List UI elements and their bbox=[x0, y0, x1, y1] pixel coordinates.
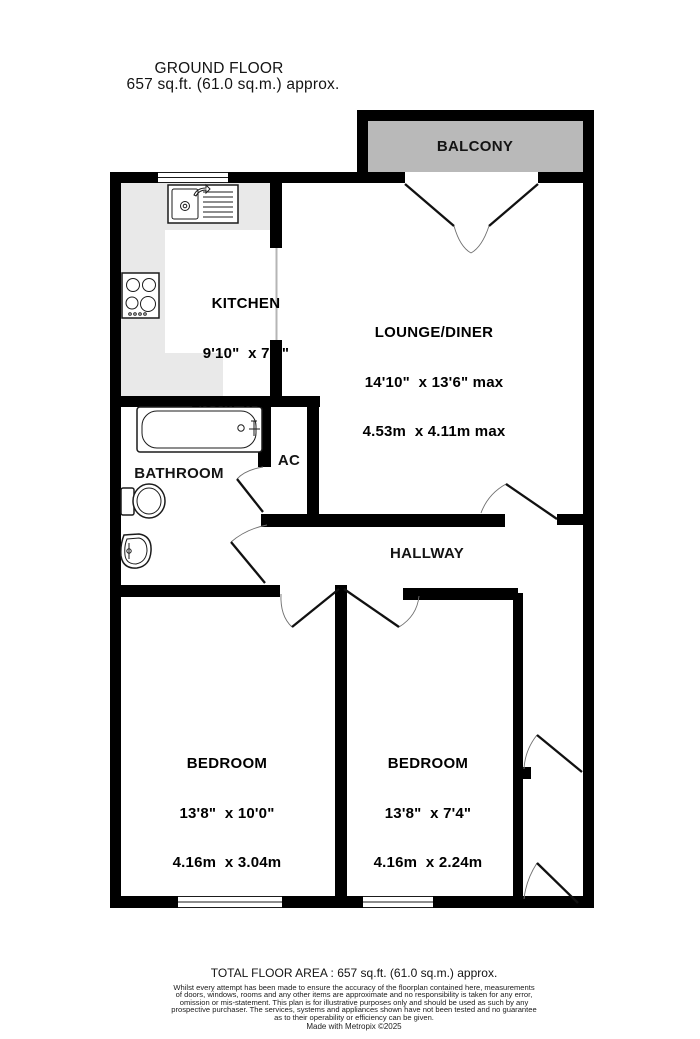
bathroom-label: BATHROOM bbox=[134, 465, 224, 482]
sink-unit bbox=[168, 185, 238, 223]
bedroom2-label: BEDROOM bbox=[374, 756, 483, 773]
total-floor-area: TOTAL FLOOR AREA : 657 sq.ft. (61.0 sq.m… bbox=[211, 966, 498, 980]
floorplan-page: GROUND FLOOR 657 sq.ft. (61.0 sq.m.) app… bbox=[0, 0, 700, 1039]
bedroom1-door bbox=[281, 589, 339, 627]
kitchen-size-metric: 2.99m x 2.22m bbox=[192, 395, 301, 412]
kitchen-window bbox=[158, 172, 228, 183]
bedroom2-size-imperial: 13'8" x 7'4" bbox=[374, 806, 483, 823]
metropix-credit: Made with Metropix ©2025 bbox=[306, 1022, 401, 1031]
cupboard-door-upper bbox=[524, 735, 582, 772]
lounge-size-metric: 4.53m x 4.11m max bbox=[363, 424, 506, 441]
page-title-area: 657 sq.ft. (61.0 sq.m.) approx. bbox=[127, 76, 340, 94]
bedroom1-size-imperial: 13'8" x 10'0" bbox=[173, 806, 282, 823]
bedroom2-label-block: BEDROOM 13'8" x 7'4" 4.16m x 2.24m bbox=[374, 723, 483, 905]
bathroom-door bbox=[231, 525, 267, 583]
disclaimer-text: Whilst every attempt has been made to en… bbox=[74, 984, 634, 1021]
bedroom1-label-block: BEDROOM 13'8" x 10'0" 4.16m x 3.04m bbox=[173, 723, 282, 905]
basin bbox=[121, 534, 151, 568]
lounge-label: LOUNGE/DINER bbox=[363, 325, 506, 342]
hob bbox=[122, 273, 159, 318]
toilet bbox=[121, 484, 165, 518]
bedroom1-size-metric: 4.16m x 3.04m bbox=[173, 855, 282, 872]
lounge-size-imperial: 14'10" x 13'6" max bbox=[363, 375, 506, 392]
lounge-label-block: LOUNGE/DINER 14'10" x 13'6" max 4.53m x … bbox=[363, 292, 506, 474]
lounge-door bbox=[481, 484, 557, 519]
bedroom1-label: BEDROOM bbox=[173, 756, 282, 773]
kitchen-label: KITCHEN bbox=[192, 296, 301, 313]
kitchen-label-block: KITCHEN 9'10" x 7'3" 2.99m x 2.22m bbox=[192, 263, 301, 445]
ac-label: AC bbox=[278, 452, 300, 469]
kitchen-size-imperial: 9'10" x 7'3" bbox=[192, 346, 301, 363]
hallway-label: HALLWAY bbox=[390, 545, 464, 562]
balcony-label: BALCONY bbox=[437, 138, 513, 155]
bedroom2-size-metric: 4.16m x 2.24m bbox=[374, 855, 483, 872]
floorplan-drawing bbox=[0, 0, 700, 1039]
ac-cupboard-door bbox=[237, 467, 263, 512]
balcony-french-doors bbox=[405, 184, 538, 253]
